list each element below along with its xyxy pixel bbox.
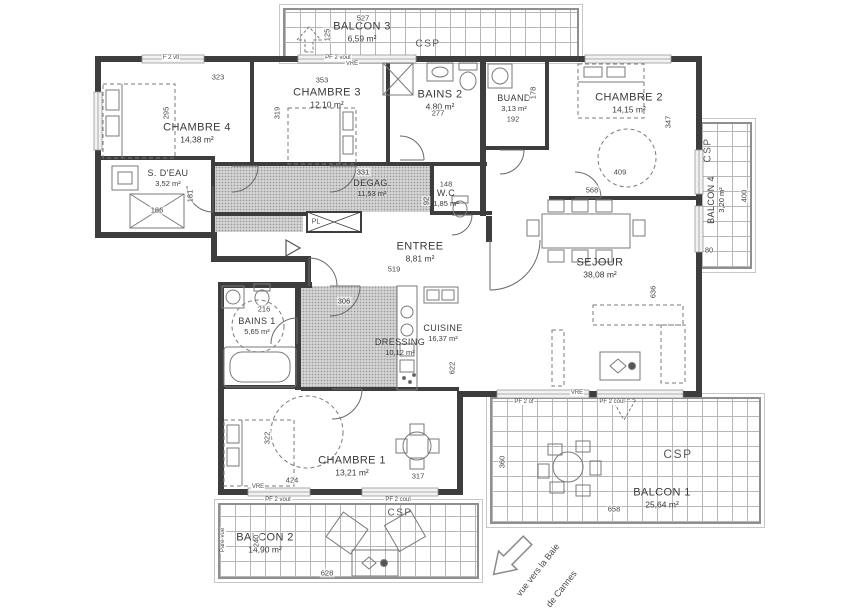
sofa <box>552 305 685 386</box>
dim-331: 331 <box>356 168 371 177</box>
room-label-balcon-1: BALCON 1 25,64 m² <box>633 486 691 509</box>
dim-628: 628 <box>320 569 335 578</box>
room-name: BUAND <box>497 93 531 104</box>
window-tag-pf2vout-bottom: PF 2 vout <box>264 497 292 503</box>
dim-323: 323 <box>211 73 226 82</box>
room-area: 13,21 m² <box>318 468 386 478</box>
room-name: CHAMBRE 3 <box>293 86 361 99</box>
room-name: SEJOUR <box>576 256 623 269</box>
dim-125: 125 <box>323 28 332 43</box>
room-area: 10,12 m² <box>375 348 425 357</box>
room-label-bains-1: BAINS 1 5,65 m² <box>238 316 275 336</box>
room-name: BALCON 2 <box>236 531 294 544</box>
room-label-sdeau: S. D'EAU 3,52 m² <box>148 168 189 188</box>
room-label-chambre-4: CHAMBRE 4 14,38 m² <box>163 121 231 144</box>
room-label-cuisine: CUISINE 16,37 m² <box>423 323 462 343</box>
window-tag-pf2vout-top: PF 2 vout <box>324 55 352 61</box>
room-label-buand: BUAND 3,13 m² <box>497 93 531 113</box>
room-name: W.C <box>433 188 458 199</box>
room-area: 25,64 m² <box>633 500 691 510</box>
room-name: BALCON 4 <box>706 176 717 224</box>
balcony-loungers <box>326 511 425 576</box>
room-label-chambre-1: CHAMBRE 1 13,21 m² <box>318 454 386 477</box>
room-area: 12,10 m² <box>293 100 361 110</box>
room-name: BALCON 1 <box>633 486 691 499</box>
vre-tag-3: VRE <box>251 484 265 490</box>
dim-636: 636 <box>649 285 658 300</box>
dim-568: 568 <box>585 186 600 195</box>
room-name: CHAMBRE 2 <box>595 91 663 104</box>
room-label-wc: W.C 1,85 m² <box>433 188 458 208</box>
dim-148: 148 <box>439 180 454 189</box>
dim-519: 519 <box>387 265 402 274</box>
dim-409: 409 <box>613 168 628 177</box>
dim-360: 360 <box>498 455 507 470</box>
csp-tag-balcon-1: CSP <box>663 447 692 461</box>
csp-tag-balcon-3: CSP <box>415 39 440 50</box>
washer <box>488 64 512 88</box>
room-name: DRESSING <box>375 337 425 348</box>
pl-closet-tag: PL <box>312 219 321 226</box>
dim-216: 216 <box>257 305 272 314</box>
floor-plan: CHAMBRE 4 14,38 m² CHAMBRE 3 12,10 m² BA… <box>0 0 860 608</box>
room-label-entree: ENTREE 8,81 m² <box>396 240 443 263</box>
room-name: CHAMBRE 1 <box>318 454 386 467</box>
pare-vue-tag: Pare-vue <box>220 527 226 553</box>
dim-240: 240 <box>252 534 261 549</box>
room-label-chambre-3: CHAMBRE 3 12,10 m² <box>293 86 361 109</box>
dim-80: 80 <box>704 246 714 255</box>
dim-317: 317 <box>411 472 426 481</box>
dim-178: 178 <box>529 86 538 101</box>
dim-92: 92 <box>422 196 431 206</box>
dim-181: 181 <box>186 189 195 204</box>
room-area: 5,65 m² <box>238 327 275 336</box>
dim-277: 277 <box>431 109 446 118</box>
room-label-balcon-4: BALCON 4 3,20 m² <box>706 176 726 224</box>
room-area: 14,90 m² <box>236 545 294 555</box>
csp-tag-balcon-2: CSP <box>387 508 412 519</box>
dim-192: 192 <box>506 115 521 124</box>
room-name: CUISINE <box>423 323 462 334</box>
room-label-balcon-2: BALCON 2 14,90 m² <box>236 531 294 554</box>
room-name: BAINS 1 <box>238 316 275 327</box>
room-area: 3,52 m² <box>148 179 189 188</box>
dim-658: 658 <box>607 505 622 514</box>
dim-306: 306 <box>337 297 352 306</box>
dim-322: 322 <box>263 431 272 446</box>
window-tag-pf2of: PF 2 of <box>513 399 534 405</box>
room-name: CHAMBRE 4 <box>163 121 231 134</box>
balcony-table-set <box>538 399 636 496</box>
dim-353: 353 <box>315 76 330 85</box>
vre-tag-1: VRE <box>345 61 359 67</box>
vre-tag-2: VRE <box>570 390 584 396</box>
room-area: 11,53 m² <box>353 189 390 198</box>
balcony-3-arrow <box>297 27 321 52</box>
room-area: 16,37 m² <box>423 334 462 343</box>
room-area: 14,15 m² <box>595 105 663 115</box>
room-area: 3,20 m² <box>717 176 726 224</box>
room-label-dressing: DRESSING 10,12 m² <box>375 337 425 357</box>
window-tag-pf2coul: PF 2 coul <box>598 399 625 405</box>
room-name: S. D'EAU <box>148 168 189 179</box>
dim-527: 527 <box>356 14 371 23</box>
table-chairs-small <box>396 424 439 469</box>
room-name: BAINS 2 <box>418 88 463 101</box>
room-area: 6,59 m² <box>333 34 391 44</box>
room-label-chambre-2: CHAMBRE 2 14,15 m² <box>595 91 663 114</box>
room-name: ENTREE <box>396 240 443 253</box>
room-area: 1,85 m² <box>433 199 458 208</box>
doors <box>187 136 601 419</box>
room-name: DEGAG. <box>353 178 390 189</box>
dim-295: 295 <box>162 106 171 121</box>
room-label-degag: DEGAG. 11,53 m² <box>353 178 390 198</box>
room-area: 14,38 m² <box>163 135 231 145</box>
room-area: 3,13 m² <box>497 104 531 113</box>
dim-400: 400 <box>740 189 749 204</box>
dining-table <box>527 200 645 262</box>
room-label-balcon-3: BALCON 3 6,59 m² <box>333 20 391 43</box>
window-tag-f2vtl: F 2 vtl <box>162 55 180 61</box>
entry-arrow-icon <box>286 240 300 256</box>
bed-chambre-3 <box>288 108 356 164</box>
dim-424: 424 <box>285 476 300 485</box>
room-area: 8,81 m² <box>396 254 443 264</box>
dim-186: 186 <box>150 206 165 215</box>
dim-319: 319 <box>273 106 282 121</box>
dim-622: 622 <box>448 361 457 376</box>
dim-347: 347 <box>664 115 673 130</box>
room-area: 38,08 m² <box>576 270 623 280</box>
window-tag-pf2coul-bottom: PF 2 coul <box>384 497 411 503</box>
room-label-sejour: SEJOUR 38,08 m² <box>576 256 623 279</box>
csp-tag-balcon-4: CSP <box>703 137 714 162</box>
